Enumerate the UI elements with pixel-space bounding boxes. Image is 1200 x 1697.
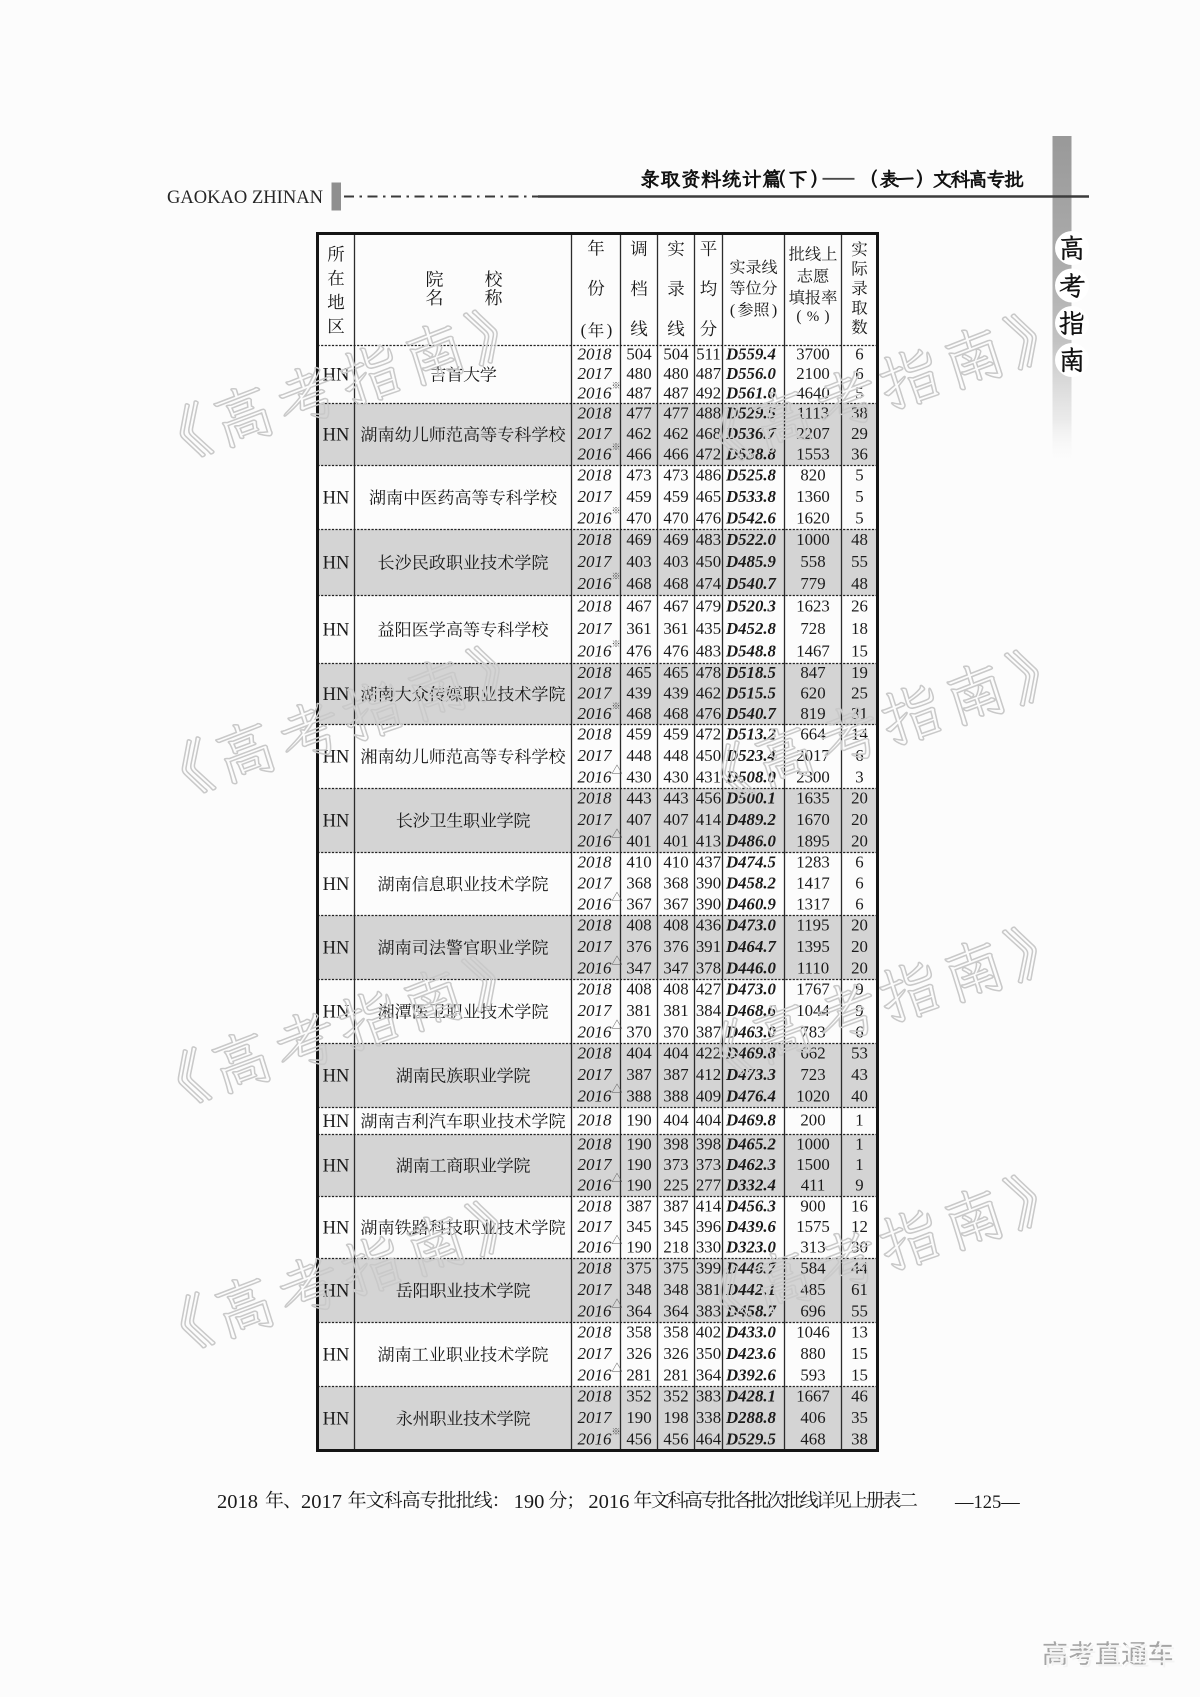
svg-text:488: 488 bbox=[696, 403, 721, 422]
svg-text:459: 459 bbox=[663, 725, 688, 744]
svg-text:480: 480 bbox=[663, 364, 688, 383]
svg-text:2016: 2016 bbox=[578, 508, 613, 527]
svg-text:D485.9: D485.9 bbox=[725, 552, 776, 571]
svg-text:391: 391 bbox=[696, 937, 721, 956]
svg-text:1620: 1620 bbox=[796, 508, 830, 527]
svg-text:(: ( bbox=[796, 308, 801, 325]
svg-text:2016: 2016 bbox=[578, 1238, 613, 1257]
svg-text:190: 190 bbox=[626, 1176, 651, 1195]
svg-text:468: 468 bbox=[696, 424, 721, 443]
svg-text:26: 26 bbox=[851, 596, 868, 615]
svg-text:HN: HN bbox=[323, 426, 350, 446]
svg-text:408: 408 bbox=[663, 916, 688, 935]
svg-text:477: 477 bbox=[626, 403, 651, 422]
svg-text:472: 472 bbox=[696, 445, 721, 464]
svg-text:18: 18 bbox=[851, 619, 868, 638]
svg-text:378: 378 bbox=[696, 958, 721, 977]
svg-text:430: 430 bbox=[663, 767, 688, 786]
svg-text:412: 412 bbox=[696, 1065, 721, 1084]
svg-text:473: 473 bbox=[626, 466, 651, 485]
svg-text:2016: 2016 bbox=[588, 1491, 629, 1513]
svg-text:2018: 2018 bbox=[578, 345, 613, 364]
svg-text:53: 53 bbox=[851, 1044, 868, 1063]
svg-text:350: 350 bbox=[696, 1344, 721, 1363]
svg-text:HN: HN bbox=[323, 748, 350, 768]
svg-text:387: 387 bbox=[626, 1065, 651, 1084]
svg-text:2016: 2016 bbox=[578, 831, 613, 850]
svg-text:414: 414 bbox=[696, 810, 722, 829]
svg-text:6: 6 bbox=[855, 894, 863, 913]
svg-text:470: 470 bbox=[663, 508, 688, 527]
svg-text:D332.4: D332.4 bbox=[725, 1176, 776, 1195]
svg-text:487: 487 bbox=[696, 364, 721, 383]
svg-text:HN: HN bbox=[323, 1410, 350, 1430]
svg-text:410: 410 bbox=[626, 852, 651, 871]
svg-text:20: 20 bbox=[851, 916, 868, 935]
svg-text:352: 352 bbox=[626, 1387, 651, 1406]
svg-text:367: 367 bbox=[663, 894, 688, 913]
svg-text:2018: 2018 bbox=[578, 852, 613, 871]
svg-text:D476.4: D476.4 bbox=[725, 1086, 776, 1105]
svg-text:5: 5 bbox=[855, 466, 863, 485]
svg-text:468: 468 bbox=[800, 1429, 825, 1448]
svg-text:D520.3: D520.3 bbox=[725, 596, 776, 615]
svg-text:2016: 2016 bbox=[578, 1022, 613, 1041]
svg-text:422: 422 bbox=[696, 1044, 721, 1063]
svg-text:D486.0: D486.0 bbox=[725, 831, 776, 850]
svg-text:375: 375 bbox=[626, 1259, 651, 1278]
svg-text:190: 190 bbox=[626, 1110, 651, 1129]
svg-text:HN: HN bbox=[323, 875, 350, 895]
svg-text:375: 375 bbox=[663, 1259, 688, 1278]
svg-text:1467: 1467 bbox=[796, 642, 830, 661]
svg-text:820: 820 bbox=[800, 466, 825, 485]
svg-text:HN: HN bbox=[323, 685, 350, 705]
svg-text:2017: 2017 bbox=[578, 1001, 614, 1020]
svg-text:1195: 1195 bbox=[797, 916, 830, 935]
svg-text:2017: 2017 bbox=[578, 1155, 614, 1174]
svg-text:403: 403 bbox=[626, 552, 651, 571]
svg-text:2018: 2018 bbox=[578, 403, 613, 422]
svg-text:2017: 2017 bbox=[578, 683, 614, 702]
svg-text:13: 13 bbox=[851, 1323, 868, 1342]
svg-text:1046: 1046 bbox=[796, 1323, 830, 1342]
svg-text:361: 361 bbox=[626, 619, 651, 638]
svg-text:2017: 2017 bbox=[578, 364, 614, 383]
svg-text:D473.3: D473.3 bbox=[725, 1065, 776, 1084]
svg-text:3700: 3700 bbox=[796, 345, 830, 364]
svg-text:HN: HN bbox=[323, 1112, 350, 1132]
svg-text:462: 462 bbox=[696, 683, 721, 702]
svg-text:D500.1: D500.1 bbox=[725, 789, 776, 808]
svg-text:431: 431 bbox=[696, 767, 721, 786]
svg-text:D515.5: D515.5 bbox=[725, 683, 776, 702]
svg-text:367: 367 bbox=[626, 894, 651, 913]
svg-text:511: 511 bbox=[696, 345, 721, 364]
svg-text:HN: HN bbox=[323, 554, 350, 574]
svg-text:1020: 1020 bbox=[796, 1086, 830, 1105]
svg-text:345: 345 bbox=[626, 1217, 651, 1236]
svg-text:404: 404 bbox=[663, 1110, 689, 1129]
svg-text:383: 383 bbox=[696, 1387, 721, 1406]
svg-text:376: 376 bbox=[663, 937, 688, 956]
svg-text:2016: 2016 bbox=[578, 574, 613, 593]
svg-text:450: 450 bbox=[696, 552, 721, 571]
svg-text:D458.2: D458.2 bbox=[725, 873, 776, 892]
svg-text:38: 38 bbox=[851, 1429, 868, 1448]
svg-text:462: 462 bbox=[626, 424, 651, 443]
svg-text:43: 43 bbox=[851, 1065, 868, 1084]
svg-text:373: 373 bbox=[663, 1155, 688, 1174]
svg-text:396: 396 bbox=[696, 1217, 721, 1236]
svg-text:469: 469 bbox=[626, 530, 651, 549]
svg-text:36: 36 bbox=[851, 445, 868, 464]
svg-text:6: 6 bbox=[855, 345, 863, 364]
svg-text:448: 448 bbox=[663, 746, 688, 765]
svg-text:D323.0: D323.0 bbox=[725, 1238, 776, 1257]
svg-text:358: 358 bbox=[626, 1323, 651, 1342]
svg-text:409: 409 bbox=[696, 1086, 721, 1105]
svg-text:437: 437 bbox=[696, 852, 721, 871]
svg-text:2018: 2018 bbox=[578, 1259, 613, 1278]
svg-text:466: 466 bbox=[663, 445, 688, 464]
svg-text:410: 410 bbox=[663, 852, 688, 871]
svg-text:361: 361 bbox=[663, 619, 688, 638]
svg-text:469: 469 bbox=[663, 530, 688, 549]
svg-text:664: 664 bbox=[800, 725, 826, 744]
svg-text:466: 466 bbox=[626, 445, 651, 464]
svg-text:368: 368 bbox=[663, 873, 688, 892]
svg-text:1110: 1110 bbox=[797, 958, 829, 977]
svg-text:55: 55 bbox=[851, 1301, 868, 1320]
svg-text:1635: 1635 bbox=[796, 789, 830, 808]
svg-text:459: 459 bbox=[626, 487, 651, 506]
svg-text:2018: 2018 bbox=[578, 916, 613, 935]
svg-text:2100: 2100 bbox=[796, 364, 830, 383]
svg-text:456: 456 bbox=[663, 1429, 688, 1448]
svg-text:D423.6: D423.6 bbox=[725, 1344, 776, 1363]
svg-text:281: 281 bbox=[626, 1365, 651, 1384]
svg-text:D469.8: D469.8 bbox=[725, 1110, 776, 1129]
svg-text:783: 783 bbox=[800, 1022, 825, 1041]
svg-text:HN: HN bbox=[323, 1219, 350, 1239]
svg-text:HN: HN bbox=[323, 812, 350, 832]
svg-text:381: 381 bbox=[696, 1280, 721, 1299]
svg-text:1: 1 bbox=[855, 1110, 863, 1129]
svg-text:2018: 2018 bbox=[578, 1110, 613, 1129]
svg-text:390: 390 bbox=[696, 894, 721, 913]
svg-text:407: 407 bbox=[626, 810, 651, 829]
svg-text:723: 723 bbox=[800, 1065, 825, 1084]
svg-text:880: 880 bbox=[800, 1344, 825, 1363]
svg-text:443: 443 bbox=[663, 789, 688, 808]
svg-text:1000: 1000 bbox=[796, 1134, 830, 1153]
svg-text:2018: 2018 bbox=[578, 789, 613, 808]
svg-text:504: 504 bbox=[663, 345, 689, 364]
svg-text:D473.0: D473.0 bbox=[725, 916, 776, 935]
svg-text:473: 473 bbox=[663, 466, 688, 485]
svg-text:2018: 2018 bbox=[578, 725, 613, 744]
svg-text:476: 476 bbox=[663, 642, 688, 661]
svg-text:277: 277 bbox=[696, 1176, 721, 1195]
svg-text:819: 819 bbox=[800, 704, 825, 723]
svg-text:(: ( bbox=[581, 321, 587, 340]
svg-text:48: 48 bbox=[851, 574, 868, 593]
svg-text:D446.0: D446.0 bbox=[725, 958, 776, 977]
svg-text:403: 403 bbox=[663, 552, 688, 571]
svg-text:381: 381 bbox=[663, 1001, 688, 1020]
svg-text:15: 15 bbox=[851, 642, 868, 661]
svg-text:387: 387 bbox=[663, 1196, 688, 1215]
svg-text:218: 218 bbox=[663, 1238, 688, 1257]
svg-text:2016: 2016 bbox=[578, 767, 613, 786]
svg-text:20: 20 bbox=[851, 937, 868, 956]
svg-text:D428.1: D428.1 bbox=[725, 1387, 776, 1406]
svg-text:2018: 2018 bbox=[578, 1196, 613, 1215]
svg-text:5: 5 bbox=[855, 487, 863, 506]
svg-text:): ) bbox=[824, 308, 829, 325]
svg-text:D468.6: D468.6 bbox=[725, 1001, 776, 1020]
svg-text:D439.6: D439.6 bbox=[725, 1217, 776, 1236]
svg-text:468: 468 bbox=[663, 574, 688, 593]
svg-text:2017: 2017 bbox=[301, 1491, 342, 1513]
svg-text:1360: 1360 bbox=[796, 487, 830, 506]
svg-text:48: 48 bbox=[851, 530, 868, 549]
svg-text:225: 225 bbox=[663, 1176, 688, 1195]
svg-text:D288.8: D288.8 bbox=[725, 1408, 776, 1427]
svg-text:468: 468 bbox=[626, 574, 651, 593]
svg-text:373: 373 bbox=[696, 1155, 721, 1174]
svg-text:480: 480 bbox=[626, 364, 651, 383]
svg-text:847: 847 bbox=[800, 663, 825, 682]
svg-text:D473.0: D473.0 bbox=[725, 980, 776, 999]
svg-text:HN: HN bbox=[323, 621, 350, 641]
svg-text:D540.7: D540.7 bbox=[725, 574, 776, 593]
svg-text:2016: 2016 bbox=[578, 383, 613, 402]
svg-text:HN: HN bbox=[323, 1282, 350, 1302]
svg-text:D518.5: D518.5 bbox=[725, 663, 776, 682]
svg-text:398: 398 bbox=[663, 1134, 688, 1153]
svg-text:459: 459 bbox=[663, 487, 688, 506]
svg-text:406: 406 bbox=[800, 1408, 825, 1427]
svg-text:443: 443 bbox=[626, 789, 651, 808]
svg-text:662: 662 bbox=[800, 1044, 825, 1063]
svg-text:404: 404 bbox=[696, 1110, 722, 1129]
svg-text:D460.9: D460.9 bbox=[725, 894, 776, 913]
svg-text:476: 476 bbox=[626, 642, 651, 661]
svg-text:%: % bbox=[807, 309, 820, 325]
svg-text:313: 313 bbox=[800, 1238, 825, 1257]
svg-text:364: 364 bbox=[663, 1301, 689, 1320]
svg-text:478: 478 bbox=[696, 663, 721, 682]
svg-text:HN: HN bbox=[323, 1346, 350, 1366]
svg-text:364: 364 bbox=[696, 1365, 722, 1384]
svg-text:467: 467 bbox=[663, 596, 688, 615]
svg-text:9: 9 bbox=[855, 1176, 863, 1195]
svg-text:D540.7: D540.7 bbox=[725, 704, 776, 723]
svg-text:2018: 2018 bbox=[578, 596, 613, 615]
svg-text:401: 401 bbox=[626, 831, 651, 850]
svg-text:2017: 2017 bbox=[578, 1408, 614, 1427]
svg-text:1417: 1417 bbox=[796, 873, 830, 892]
svg-text:364: 364 bbox=[626, 1301, 652, 1320]
svg-text:388: 388 bbox=[663, 1086, 688, 1105]
svg-text:D548.8: D548.8 bbox=[725, 642, 776, 661]
svg-text:413: 413 bbox=[696, 831, 721, 850]
svg-text:1667: 1667 bbox=[796, 1387, 830, 1406]
svg-text:347: 347 bbox=[626, 958, 651, 977]
svg-text:620: 620 bbox=[800, 683, 825, 702]
svg-text:370: 370 bbox=[626, 1022, 651, 1041]
svg-text:2018: 2018 bbox=[578, 466, 613, 485]
svg-text:348: 348 bbox=[626, 1280, 651, 1299]
svg-text:504: 504 bbox=[626, 345, 652, 364]
svg-text:1395: 1395 bbox=[796, 937, 830, 956]
svg-text:190: 190 bbox=[626, 1134, 651, 1153]
svg-text:190: 190 bbox=[514, 1491, 545, 1513]
svg-text:404: 404 bbox=[626, 1044, 652, 1063]
svg-text:2017: 2017 bbox=[578, 1344, 614, 1363]
svg-text:464: 464 bbox=[696, 1429, 722, 1448]
svg-text:D462.3: D462.3 bbox=[725, 1155, 776, 1174]
svg-text:19: 19 bbox=[851, 663, 868, 682]
svg-text:388: 388 bbox=[626, 1086, 651, 1105]
svg-text:472: 472 bbox=[696, 725, 721, 744]
svg-text:2018: 2018 bbox=[578, 1323, 613, 1342]
svg-text:401: 401 bbox=[663, 831, 688, 850]
svg-text:326: 326 bbox=[626, 1344, 651, 1363]
svg-text:D465.2: D465.2 bbox=[725, 1134, 776, 1153]
svg-text:190: 190 bbox=[626, 1238, 651, 1257]
svg-text:483: 483 bbox=[696, 642, 721, 661]
svg-text:D392.6: D392.6 bbox=[725, 1365, 776, 1384]
svg-text:408: 408 bbox=[626, 916, 651, 935]
svg-text:384: 384 bbox=[696, 1001, 722, 1020]
svg-text:338: 338 bbox=[696, 1408, 721, 1427]
svg-text:1623: 1623 bbox=[796, 596, 830, 615]
svg-text:281: 281 bbox=[663, 1365, 688, 1384]
svg-text:D533.8: D533.8 bbox=[725, 487, 776, 506]
svg-text:376: 376 bbox=[626, 937, 651, 956]
svg-text:370: 370 bbox=[663, 1022, 688, 1041]
svg-text:1553: 1553 bbox=[796, 445, 830, 464]
svg-text:398: 398 bbox=[696, 1134, 721, 1153]
svg-text:D464.7: D464.7 bbox=[725, 937, 776, 956]
svg-text:465: 465 bbox=[663, 663, 688, 682]
svg-text:2016: 2016 bbox=[578, 642, 613, 661]
svg-text:2017: 2017 bbox=[578, 1065, 614, 1084]
svg-text:435: 435 bbox=[696, 619, 721, 638]
svg-text:900: 900 bbox=[800, 1196, 825, 1215]
svg-text:404: 404 bbox=[663, 1044, 689, 1063]
svg-text:2016: 2016 bbox=[578, 894, 613, 913]
svg-text:326: 326 bbox=[663, 1344, 688, 1363]
svg-text:HN: HN bbox=[323, 1157, 350, 1177]
svg-text:492: 492 bbox=[696, 383, 721, 402]
svg-text:25: 25 bbox=[851, 683, 868, 702]
svg-text:2017: 2017 bbox=[578, 810, 614, 829]
svg-text:2017: 2017 bbox=[578, 619, 614, 638]
svg-text:476: 476 bbox=[696, 704, 721, 723]
svg-text:402: 402 bbox=[696, 1323, 721, 1342]
svg-text:16: 16 bbox=[851, 1196, 868, 1215]
svg-text:2018: 2018 bbox=[217, 1491, 258, 1513]
svg-text:20: 20 bbox=[851, 789, 868, 808]
svg-text:200: 200 bbox=[800, 1110, 825, 1129]
svg-text:465: 465 bbox=[626, 663, 651, 682]
svg-text:387: 387 bbox=[626, 1196, 651, 1215]
svg-text:6: 6 bbox=[855, 873, 863, 892]
svg-text:348: 348 bbox=[663, 1280, 688, 1299]
svg-text:2018: 2018 bbox=[578, 980, 613, 999]
svg-text:15: 15 bbox=[851, 1344, 868, 1363]
svg-text:479: 479 bbox=[696, 596, 721, 615]
svg-text:HN: HN bbox=[323, 489, 350, 509]
svg-text:347: 347 bbox=[663, 958, 688, 977]
svg-text:468: 468 bbox=[626, 704, 651, 723]
svg-text:): ) bbox=[607, 321, 613, 340]
svg-text:15: 15 bbox=[851, 1365, 868, 1384]
svg-text:1670: 1670 bbox=[796, 810, 830, 829]
svg-text:6: 6 bbox=[855, 852, 863, 871]
svg-text:D529.5: D529.5 bbox=[725, 1429, 776, 1448]
svg-text:470: 470 bbox=[626, 508, 651, 527]
svg-text:450: 450 bbox=[696, 746, 721, 765]
svg-text:HN: HN bbox=[323, 1067, 350, 1087]
svg-text:2017: 2017 bbox=[578, 937, 614, 956]
svg-text:(: ( bbox=[730, 302, 735, 319]
svg-text:352: 352 bbox=[663, 1387, 688, 1406]
svg-text:2017: 2017 bbox=[578, 487, 614, 506]
svg-text:462: 462 bbox=[663, 424, 688, 443]
svg-text:427: 427 bbox=[696, 980, 721, 999]
svg-text:467: 467 bbox=[626, 596, 651, 615]
svg-text:2017: 2017 bbox=[578, 552, 614, 571]
svg-text:390: 390 bbox=[696, 873, 721, 892]
svg-text:2016: 2016 bbox=[578, 1429, 613, 1448]
svg-text:HN: HN bbox=[323, 939, 350, 959]
svg-text:2300: 2300 bbox=[796, 767, 830, 786]
svg-text:D542.6: D542.6 bbox=[725, 508, 776, 527]
svg-text:20: 20 bbox=[851, 958, 868, 977]
svg-text:2017: 2017 bbox=[578, 746, 614, 765]
svg-text:D556.0: D556.0 bbox=[725, 364, 776, 383]
svg-text:D452.8: D452.8 bbox=[725, 619, 776, 638]
svg-text:D522.0: D522.0 bbox=[725, 530, 776, 549]
svg-text:474: 474 bbox=[696, 574, 722, 593]
svg-text:D474.5: D474.5 bbox=[725, 852, 776, 871]
svg-text:456: 456 bbox=[626, 1429, 651, 1448]
svg-text:477: 477 bbox=[663, 403, 688, 422]
svg-text:2016: 2016 bbox=[578, 1365, 613, 1384]
svg-text:459: 459 bbox=[626, 725, 651, 744]
svg-text:198: 198 bbox=[663, 1408, 688, 1427]
svg-text:2018: 2018 bbox=[578, 1044, 613, 1063]
svg-text:430: 430 bbox=[626, 767, 651, 786]
svg-text:2017: 2017 bbox=[578, 873, 614, 892]
svg-text:330: 330 bbox=[696, 1238, 721, 1257]
svg-text:1500: 1500 bbox=[796, 1155, 830, 1174]
svg-text:483: 483 bbox=[696, 530, 721, 549]
svg-text:2207: 2207 bbox=[796, 424, 830, 443]
svg-text:411: 411 bbox=[801, 1176, 826, 1195]
svg-text:): ) bbox=[772, 302, 777, 319]
svg-text:487: 487 bbox=[626, 383, 651, 402]
svg-text:448: 448 bbox=[626, 746, 651, 765]
svg-text:728: 728 bbox=[800, 619, 825, 638]
svg-text:456: 456 bbox=[696, 789, 721, 808]
svg-text:29: 29 bbox=[851, 424, 868, 443]
